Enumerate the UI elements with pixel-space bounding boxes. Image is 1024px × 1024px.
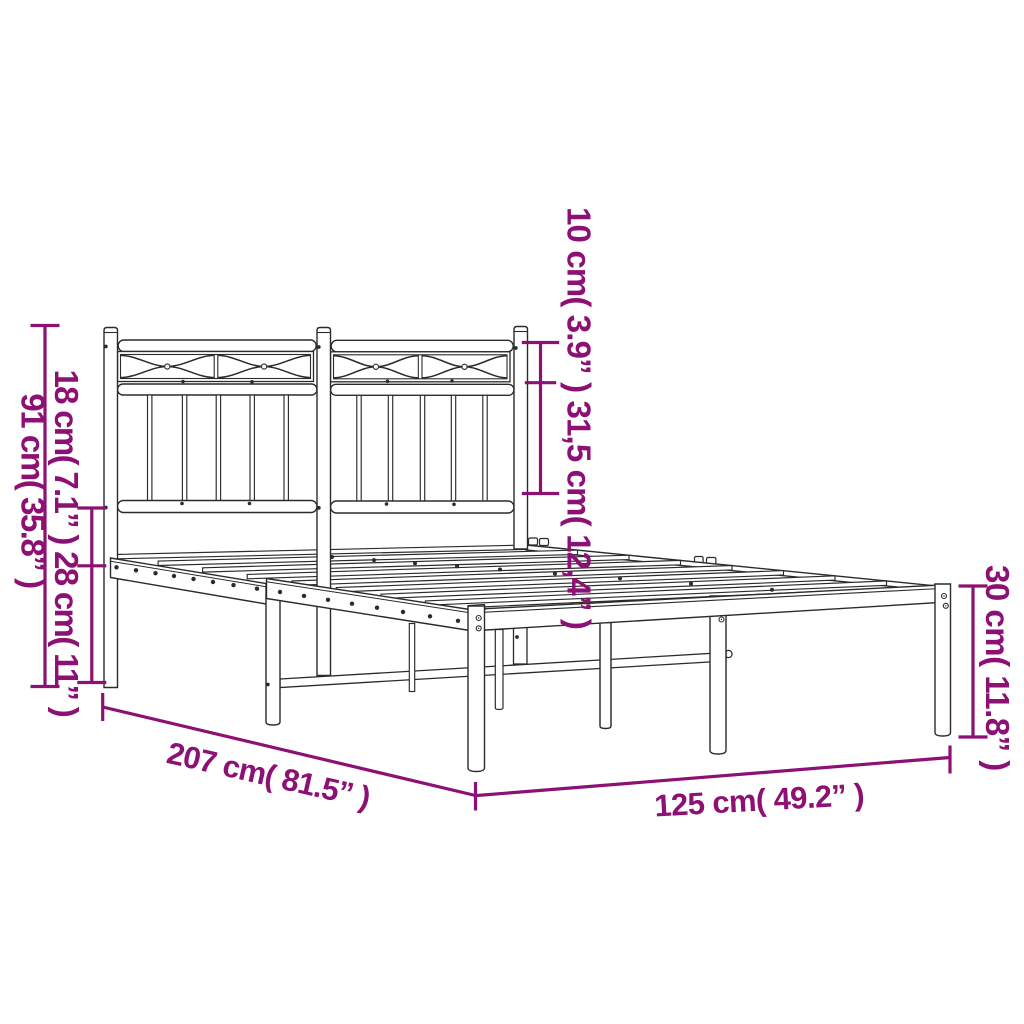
svg-text:30 cm( 11.8” ): 30 cm( 11.8” ) (979, 565, 1016, 771)
svg-text:18 cm( 7.1” ) 28 cm( 11” ): 18 cm( 7.1” ) 28 cm( 11” ) (48, 370, 85, 717)
svg-text:91 cm( 35.8” ): 91 cm( 35.8” ) (14, 393, 51, 588)
svg-text:10 cm( 3.9” ) 31,5 cm( 12,4” ): 10 cm( 3.9” ) 31,5 cm( 12,4” ) (561, 207, 598, 629)
